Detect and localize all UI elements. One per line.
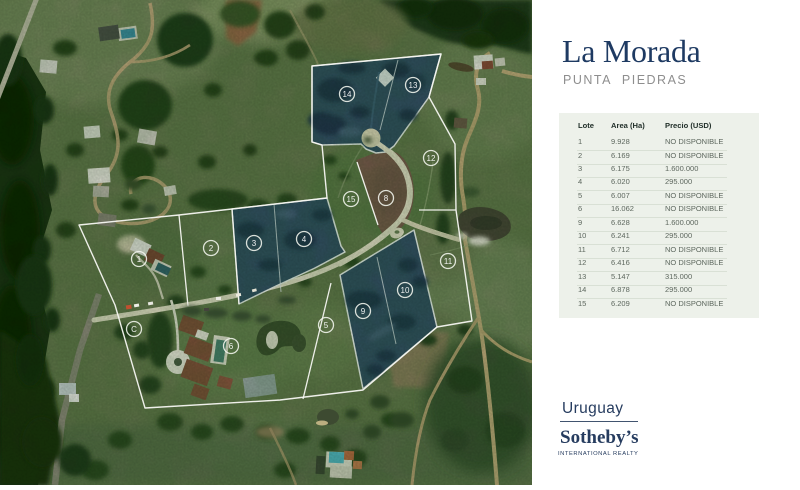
svg-text:14: 14 xyxy=(343,90,352,99)
svg-text:15: 15 xyxy=(347,195,356,204)
svg-text:11: 11 xyxy=(444,257,453,266)
svg-text:8: 8 xyxy=(384,194,389,203)
svg-text:5: 5 xyxy=(324,321,329,330)
svg-text:13: 13 xyxy=(409,81,418,90)
svg-text:6: 6 xyxy=(229,342,234,351)
svg-text:12: 12 xyxy=(427,154,436,163)
svg-text:1: 1 xyxy=(137,255,142,264)
svg-text:10: 10 xyxy=(401,286,410,295)
svg-text:9: 9 xyxy=(361,307,366,316)
svg-text:3: 3 xyxy=(252,239,257,248)
svg-text:4: 4 xyxy=(302,235,307,244)
svg-text:2: 2 xyxy=(209,244,214,253)
svg-text:C: C xyxy=(131,325,137,334)
